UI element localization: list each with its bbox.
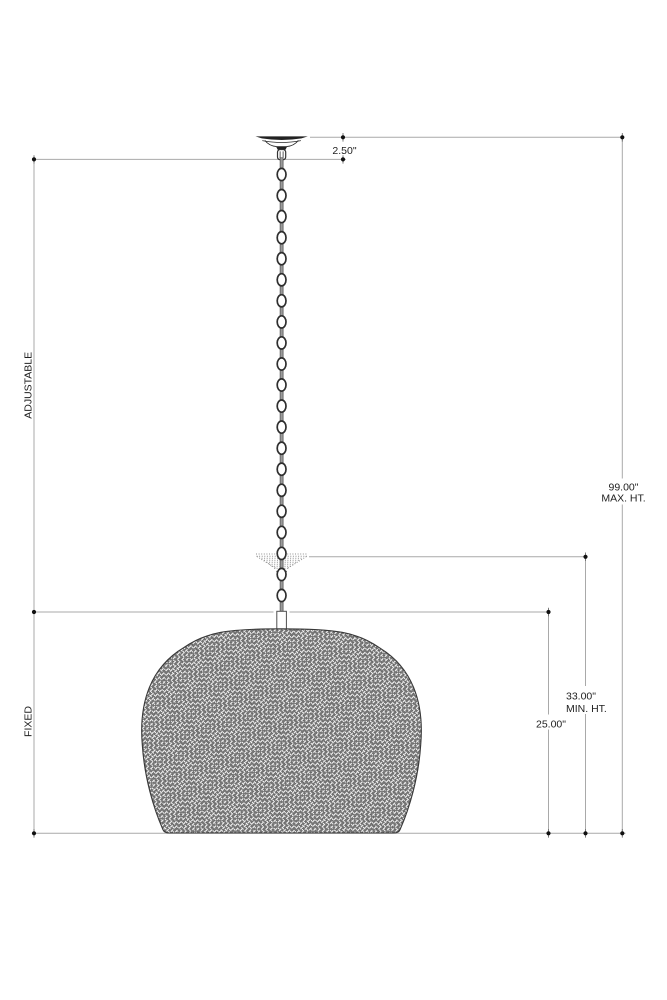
svg-text:MIN. HT.: MIN. HT.: [566, 703, 607, 715]
svg-text:MAX. HT.: MAX. HT.: [601, 493, 645, 505]
svg-text:ADJUSTABLE: ADJUSTABLE: [23, 352, 35, 419]
svg-text:33.00": 33.00": [566, 690, 596, 702]
svg-text:25.00": 25.00": [536, 718, 566, 730]
svg-text:FIXED: FIXED: [23, 706, 35, 737]
svg-text:2.50": 2.50": [332, 145, 356, 157]
